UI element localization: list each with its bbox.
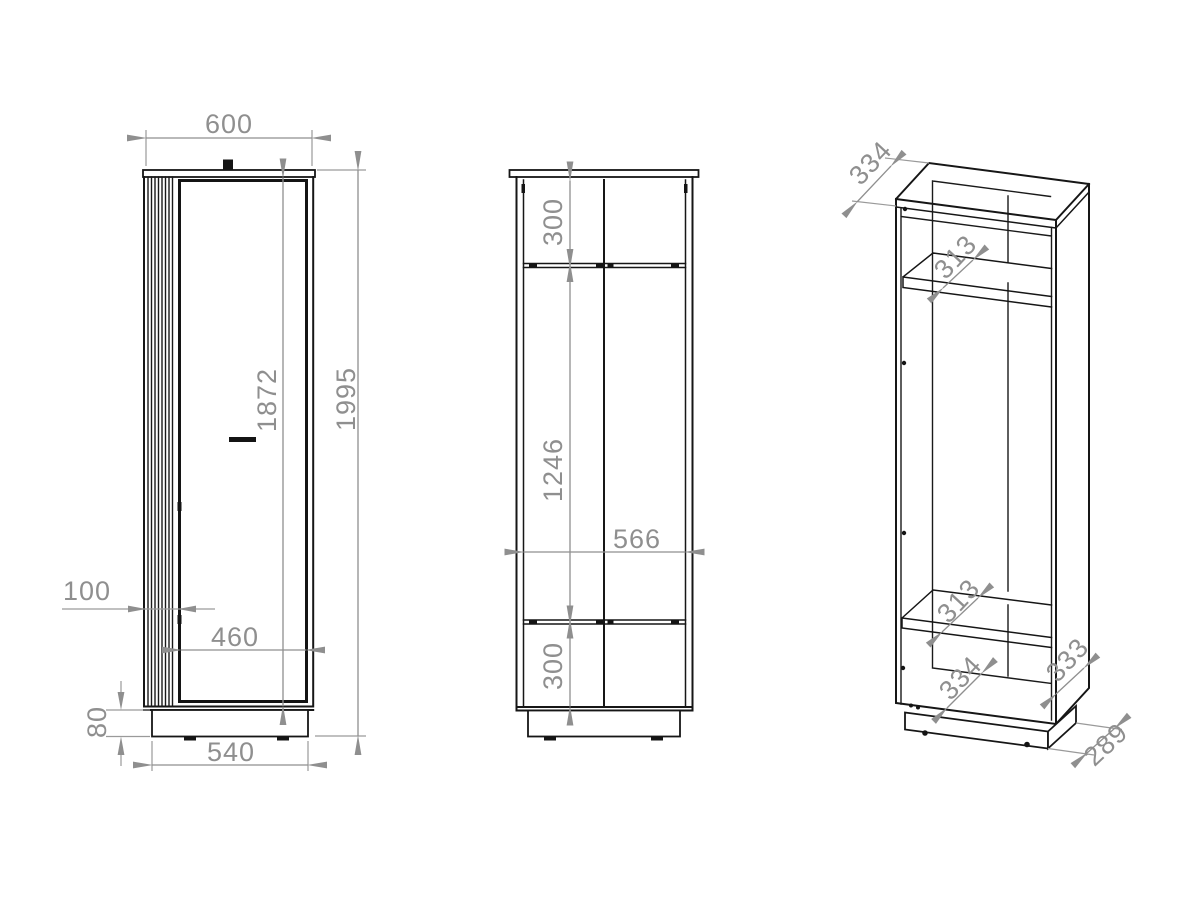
dim-label-plinth-height: 80 — [82, 706, 112, 738]
dim-label-top-compartment: 300 — [538, 198, 568, 246]
dim-label-plinth-depth: 289 — [1078, 717, 1134, 772]
front-foot-left — [184, 737, 196, 741]
rear-top-panel — [510, 170, 699, 177]
dim-label-plinth-width: 540 — [207, 737, 255, 767]
dim-label-slat-width: 100 — [63, 576, 111, 606]
front-door-handle — [229, 437, 256, 442]
perspective-dimensions: 334 313 313 334 333 289 — [843, 135, 1134, 772]
dim-label-front-height: 1872 — [252, 368, 282, 432]
rear-foot-right — [651, 737, 663, 741]
rear-view: 300 1246 566 300 — [510, 170, 699, 741]
front-hinge-mark-1 — [178, 502, 182, 511]
front-hinge-mark-2 — [178, 615, 182, 624]
dim-label-overall-height: 1995 — [331, 367, 361, 431]
front-top-knob — [223, 160, 233, 170]
dim-label-side-panel-depth: 333 — [1040, 632, 1095, 688]
rear-plinth — [528, 711, 680, 737]
technical-drawing: 600 1995 1872 100 460 80 540 — [0, 0, 1202, 901]
arrow-plinth-top — [118, 692, 125, 710]
dim-label-middle-compartment: 1246 — [538, 438, 568, 502]
dim-label-top-width: 600 — [205, 109, 253, 139]
front-view: 600 1995 1872 100 460 80 540 — [62, 109, 366, 771]
front-plinth — [152, 710, 308, 737]
front-top-panel — [143, 170, 315, 177]
drawing-svg: 600 1995 1872 100 460 80 540 — [0, 0, 1202, 901]
front-foot-right — [277, 737, 289, 741]
dim-label-top-depth: 334 — [843, 135, 898, 191]
dim-label-door-width: 460 — [211, 622, 259, 652]
rear-foot-left — [544, 737, 556, 741]
dim-label-bottom-depth: 334 — [933, 650, 988, 706]
perspective-carcass — [896, 163, 1089, 724]
dim-label-bottom-compartment: 300 — [538, 642, 568, 690]
dim-label-interior-width: 566 — [613, 524, 661, 554]
perspective-view: 334 313 313 334 333 289 — [843, 135, 1134, 772]
dim-label-upper-shelf-depth: 313 — [928, 229, 983, 285]
dim-label-lower-shelf-depth: 313 — [931, 573, 986, 629]
arrow-plinth-bottom — [118, 737, 125, 756]
